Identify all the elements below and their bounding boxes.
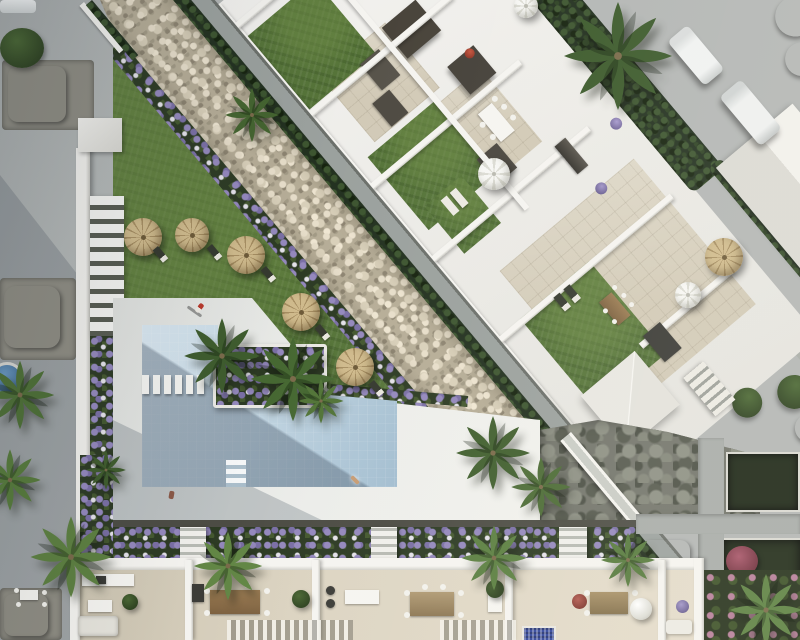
garden-tree	[770, 368, 800, 416]
aerial-render-scene	[0, 0, 800, 640]
terrace-divider-wall	[694, 558, 704, 640]
boundary-wall-corner	[78, 118, 122, 152]
staircase	[371, 527, 397, 560]
outdoor-sofa	[78, 616, 118, 636]
palm-tree	[558, 0, 678, 116]
tree	[767, 0, 800, 45]
palm-tree	[0, 446, 44, 514]
kitchen-island	[345, 590, 379, 604]
palm-tree	[296, 376, 346, 426]
palm-tree	[508, 454, 574, 520]
shrub	[4, 286, 60, 348]
straw-umbrella	[705, 238, 743, 276]
palm-tree	[222, 85, 282, 145]
straw-umbrella	[175, 218, 209, 252]
kitchen-appliance	[326, 586, 335, 595]
white-parasol	[675, 282, 701, 308]
straw-umbrella	[227, 236, 265, 274]
dining-table	[410, 592, 454, 616]
shrub	[8, 66, 66, 122]
dining-table	[590, 592, 628, 614]
garden-tree	[789, 408, 800, 447]
staircase	[559, 527, 587, 560]
terrace-divider-wall	[658, 560, 666, 640]
pergola-roof	[227, 620, 353, 640]
palm-tree	[598, 530, 658, 590]
palm-tree	[0, 357, 58, 433]
chair	[584, 590, 590, 596]
palm-tree	[84, 448, 128, 492]
outdoor-sofa	[666, 620, 692, 634]
chair	[404, 590, 410, 596]
shrub	[0, 28, 44, 68]
straw-umbrella	[282, 293, 320, 331]
palm-tree	[726, 570, 800, 640]
plunge-pool	[522, 626, 556, 640]
kitchen-appliance	[326, 599, 335, 608]
deck-edge-trim	[113, 520, 636, 527]
garden-path-horizontal	[636, 514, 800, 534]
pergola-roof	[440, 620, 516, 640]
pool-corner-steps	[226, 460, 246, 487]
purple-potted-plant	[676, 600, 689, 613]
chair	[14, 588, 19, 593]
red-potted-plant	[572, 594, 587, 609]
potted-plant	[292, 590, 310, 608]
palm-tree	[26, 512, 116, 602]
potted-plant	[122, 594, 138, 610]
tree	[778, 35, 800, 83]
parked-car-roof	[0, 0, 36, 13]
dark-planting-bed	[726, 452, 800, 512]
white-parasol	[478, 158, 510, 190]
sphere-lamp	[630, 598, 652, 620]
palm-tree	[190, 528, 266, 604]
palm-tree	[458, 522, 530, 594]
